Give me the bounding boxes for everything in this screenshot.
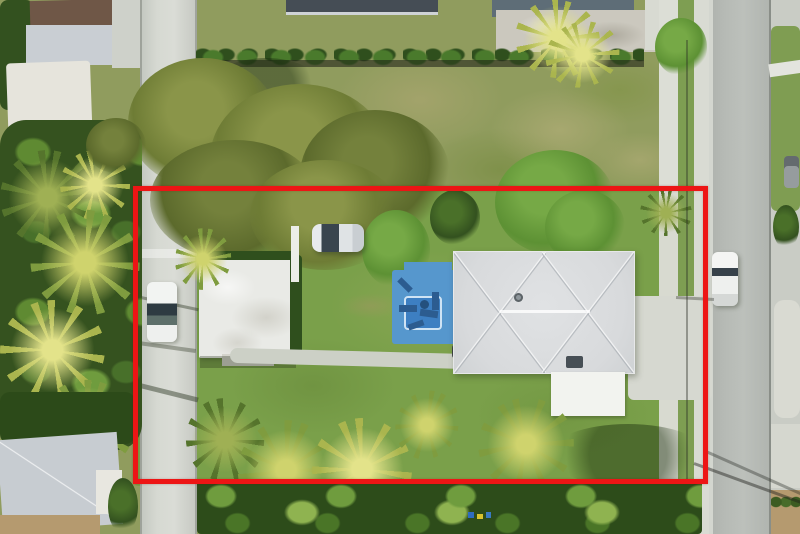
aerial-photo [0, 0, 800, 534]
yard-toy-yellow [477, 514, 483, 519]
east-strip-white-driveway [774, 300, 800, 418]
west-canopy-small [86, 118, 146, 173]
yard-toy-blue-2 [486, 512, 491, 518]
east-strip-parked-car [784, 156, 799, 188]
east-strip-driveway2 [771, 424, 800, 488]
south-vegetation [197, 480, 702, 534]
south-veg-left-blob [108, 478, 138, 534]
east-strip-bush [773, 205, 799, 249]
white-car-on-street [712, 252, 738, 306]
yard-toy-blue-1 [468, 512, 474, 518]
property-boundary [133, 186, 708, 484]
roadside-tree-north [655, 18, 707, 76]
north-roof-edge [286, 12, 438, 15]
nw-house-wall [26, 25, 118, 65]
nw-house-brown-roof [30, 0, 115, 28]
sw-dirt [0, 515, 100, 534]
